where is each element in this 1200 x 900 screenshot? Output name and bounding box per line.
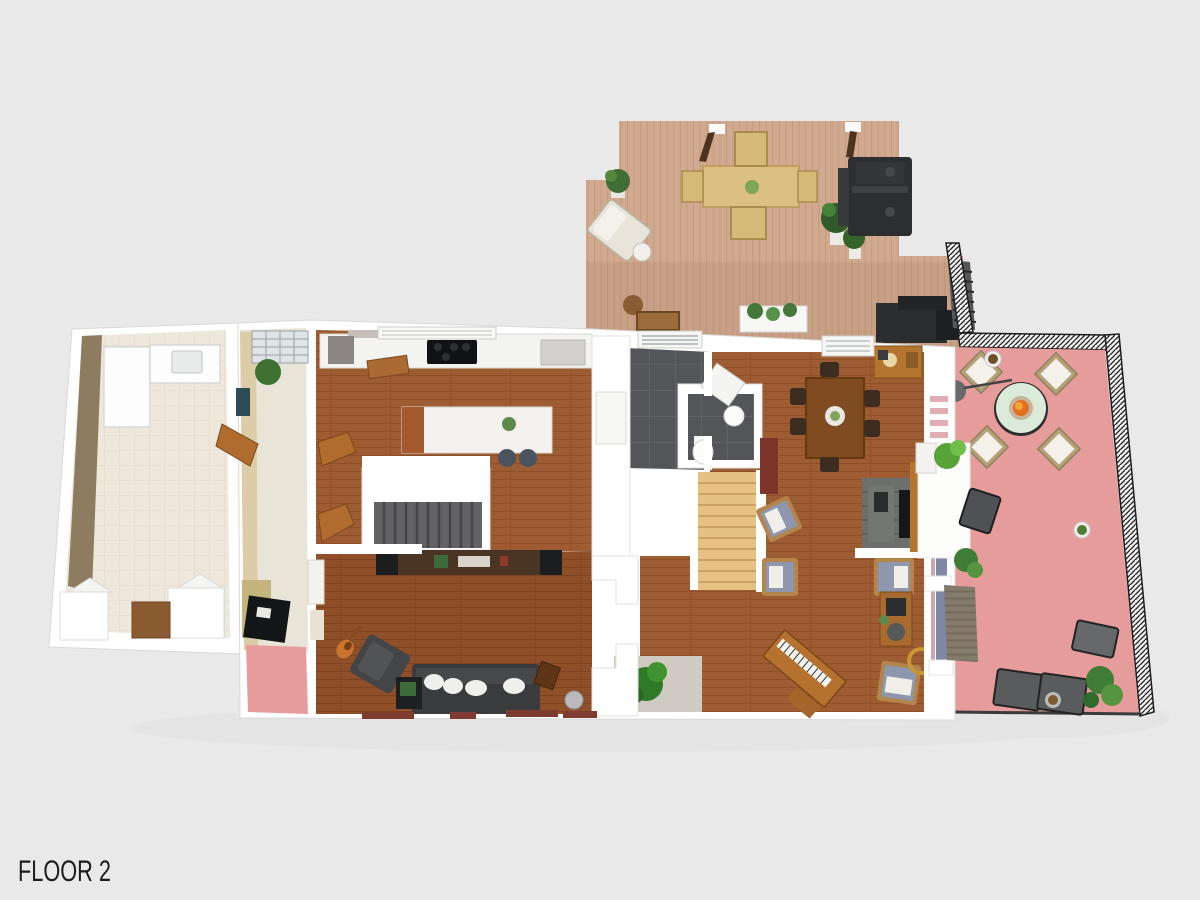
svg-text:FLOOR 2: FLOOR 2 [18,855,111,888]
